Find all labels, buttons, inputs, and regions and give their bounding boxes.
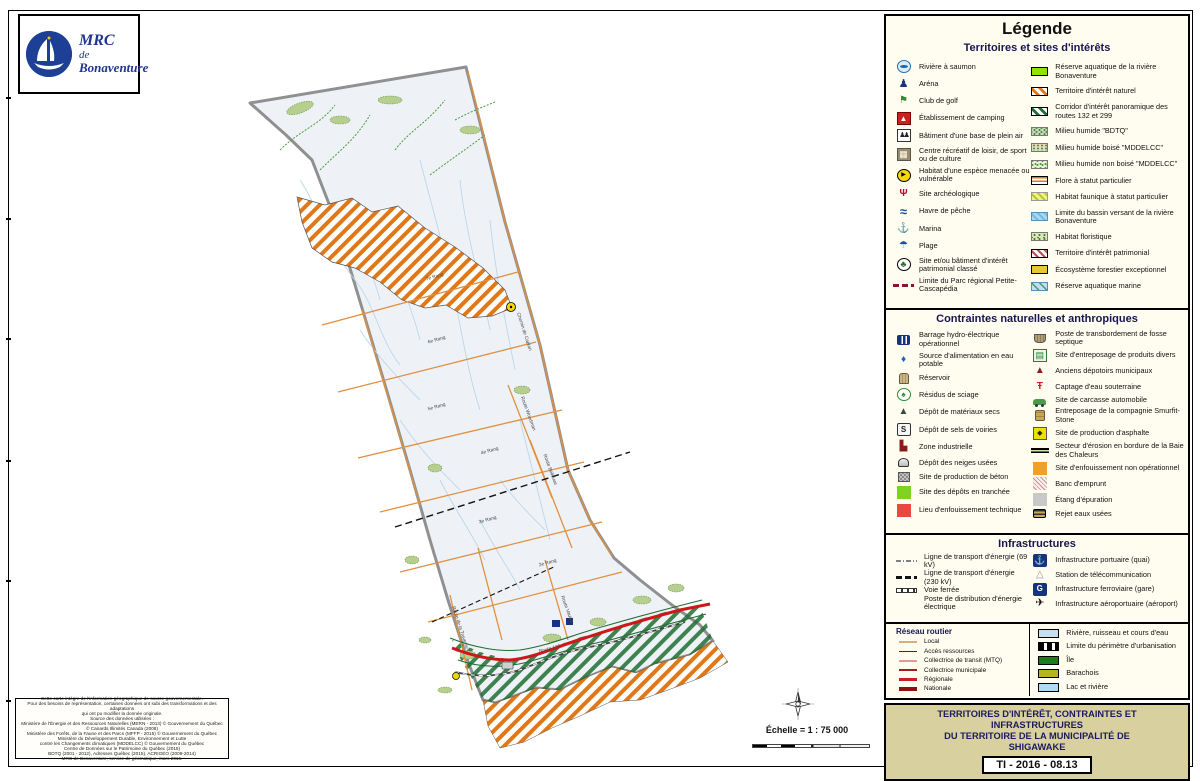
watercourse-line <box>1038 629 1059 638</box>
legend-item: Limite du Parc régional Petite-Cascapédi… <box>894 277 1030 293</box>
watershed-limit-swatch <box>1031 212 1048 221</box>
island-swatch <box>1038 656 1059 665</box>
legend-item: Réserve aquatique de la rivière Bonavent… <box>1030 63 1184 79</box>
legend-item: Infrastructure ferroviaire (gare) <box>1030 583 1184 596</box>
road-regional-line <box>899 678 917 681</box>
concrete-plant-icon <box>898 472 910 482</box>
legend-item: Lieu d'enfouissement technique <box>894 504 1030 517</box>
barachois-swatch <box>1038 669 1059 678</box>
legend-item: Résidus de sciage <box>894 388 1030 401</box>
legend-item: Centre récréatif de loisir, de sport ou … <box>894 147 1030 163</box>
road-local-line <box>899 641 917 643</box>
legend-item: Site archéologique <box>894 188 1030 201</box>
closed-landfill-swatch <box>1033 462 1047 475</box>
map-title-block: TERRITOIRES D'INTÉRÊT, CONTRAINTES ET IN… <box>884 703 1190 781</box>
drinking-water-icon <box>897 354 911 367</box>
section-title-contraintes: Contraintes naturelles et anthropiques <box>886 310 1188 325</box>
legend-item: Limite du périmètre d'urbanisation <box>1036 642 1184 651</box>
legend-item: Site d'entreposage de produits divers <box>1030 349 1184 362</box>
legend-item: Accès ressources <box>896 647 1025 656</box>
asphalt-plant-icon <box>1033 427 1047 440</box>
legend-item: Rivière, ruisseau et cours d'eau <box>1036 629 1184 638</box>
sailboat-logo-icon <box>26 31 72 77</box>
legend-item: Réservoir <box>894 373 1030 384</box>
section-title-territoires: Territoires et sites d'intérêts <box>886 39 1188 54</box>
legend-item: Barrage hydro-électrique opérationnel <box>894 331 1030 347</box>
camping-icon <box>897 112 911 125</box>
legend-item: Rivière à saumon <box>894 60 1030 73</box>
sawdust-icon <box>897 388 911 401</box>
legend-item: Limite du bassin versant de la rivière B… <box>1030 209 1184 225</box>
legend-item: Corridor d'intérêt panoramique des route… <box>1030 103 1184 119</box>
groundwater-capture-icon <box>1033 381 1047 394</box>
port-icon <box>1033 554 1047 567</box>
heritage-building-icon <box>897 258 911 271</box>
legend-item: Site de production d'asphalte <box>1030 427 1184 440</box>
legend-item: Site et/ou bâtiment d'intérêt patrimonia… <box>894 257 1030 273</box>
legend-item: Captage d'eau souterraine <box>1030 381 1184 394</box>
legend-item: Site de carcasse automobile <box>1030 396 1184 404</box>
products-storage-icon <box>1033 349 1047 362</box>
regional-park-limit-icon <box>893 284 914 287</box>
hydro-dam-icon <box>897 335 910 345</box>
wetland-open-swatch <box>1031 160 1048 169</box>
flora-status-swatch <box>1031 176 1048 185</box>
outdoor-base-icon <box>897 129 911 142</box>
legend-item: Infrastructure portuaire (quai) <box>1030 554 1184 567</box>
logo-text: MRC de Bonaventure <box>79 33 148 75</box>
legend-item: Anciens dépotoirs municipaux <box>1030 365 1184 378</box>
legend-item: Poste de transbordement de fosse septiqu… <box>1030 330 1184 346</box>
floristic-habitat-swatch <box>1031 232 1048 241</box>
trench-deposit-swatch <box>897 486 911 499</box>
scale-bar <box>752 744 870 748</box>
legend-item: Rejet eaux usées <box>1030 509 1184 518</box>
legend-item: Ligne de transport d'énergie (69 kV) <box>894 553 1030 569</box>
legend-item: Étang d'épuration <box>1030 493 1184 506</box>
legend-item: Territoire d'intérêt naturel <box>1030 87 1184 96</box>
map-title-line: SHIGAWAKE <box>892 742 1182 753</box>
legend-section-contraintes: Contraintes naturelles et anthropiques B… <box>884 308 1190 533</box>
legend-item: Régionale <box>896 675 1025 684</box>
old-dump-icon <box>1033 365 1047 378</box>
legend-item: Aréna <box>894 78 1030 91</box>
legend-item: Bâtiment d'une base de plein air <box>894 129 1030 142</box>
marina-icon <box>897 222 911 235</box>
fauna-habitat-swatch <box>1031 192 1048 201</box>
legend-section-reseau-routier: Réseau routier Local Accès ressources <box>884 622 1190 700</box>
erosion-sector-icon <box>1031 448 1049 453</box>
legend-panel: Légende Territoires et sites d'intérêts … <box>884 14 1190 781</box>
legend-item: Écosystème forestier exceptionnel <box>1030 265 1184 274</box>
treatment-pond-swatch <box>1033 493 1047 506</box>
road-salt-icon <box>897 423 911 436</box>
wetland-wooded-swatch <box>1031 143 1048 152</box>
legend-title: Légende <box>886 16 1188 39</box>
panoramic-corridor-swatch <box>1031 107 1048 116</box>
legend-item: Site des dépôts en tranchée <box>894 486 1030 499</box>
wetland-bdtq-swatch <box>1031 127 1048 136</box>
legend-item: Secteur d'érosion en bordure de la Baie … <box>1030 442 1184 458</box>
forest-ecosystem-swatch <box>1031 265 1048 274</box>
telecom-station-icon <box>1033 568 1047 581</box>
legend-item: Club de golf <box>894 95 1030 108</box>
recreation-centre-icon <box>897 148 911 161</box>
attribution-line: MRC de Bonaventure, service de géomatiqu… <box>18 756 226 761</box>
legend-item: Banc d'emprunt <box>1030 477 1184 490</box>
legend-item: Réserve aquatique marine <box>1030 282 1184 291</box>
section-title-infrastructures: Infrastructures <box>886 535 1188 550</box>
dry-materials-icon <box>897 406 911 419</box>
port-map-icon <box>552 620 560 627</box>
legend-item: Entreposage de la compagnie Smurfit-Ston… <box>1030 407 1184 423</box>
legend-item: Collectrice de transit (MTQ) <box>896 656 1025 665</box>
industrial-zone-icon <box>897 441 911 454</box>
legend-item: Dépôt des neiges usées <box>894 458 1030 467</box>
train-station-icon <box>1033 583 1047 596</box>
legend-item: Ligne de transport d'énergie (230 kV) <box>894 569 1030 585</box>
legend-item: Habitat faunique à statut particulier <box>1030 192 1184 201</box>
legend-item: Poste de distribution d'énergie électriq… <box>894 595 1030 611</box>
legend-item: Milieu humide boisé "MDDELCC" <box>1030 143 1184 152</box>
aquatic-reserve-swatch <box>1031 67 1048 76</box>
legend-item: Établissement de camping <box>894 112 1030 125</box>
legend-item: Havre de pêche <box>894 205 1030 218</box>
attribution-box: Cette carte intègre de l'information géo… <box>15 698 229 759</box>
lake-river-swatch <box>1038 683 1059 692</box>
road-network-subpanel: Réseau routier Local Accès ressources <box>894 624 1030 696</box>
road-national-line <box>899 687 917 691</box>
endangered-species-icon <box>897 169 911 182</box>
fishing-harbour-icon <box>897 205 911 218</box>
logo-line1: MRC <box>79 33 148 50</box>
legend-item: Milieu humide non boisé "MDDELCC" <box>1030 160 1184 169</box>
road-mtq-line <box>899 660 917 662</box>
septic-transfer-icon <box>1034 334 1046 343</box>
legend-item: Collectrice municipale <box>896 666 1025 675</box>
smurfit-storage-icon <box>1035 410 1045 421</box>
archaeological-site-icon <box>897 188 911 201</box>
legend-item: Site d'enfouissement non opérationnel <box>1030 462 1184 475</box>
legend-item: Source d'alimentation en eau potable <box>894 352 1030 368</box>
legend-item: Dépôt de matériaux secs <box>894 406 1030 419</box>
urban-perimeter-line <box>1038 642 1059 651</box>
legend-item: Nationale <box>896 685 1025 694</box>
power-line-230-icon <box>896 576 917 579</box>
legend-item: Territoire d'intérêt patrimonial <box>1030 249 1184 258</box>
power-line-69-icon <box>896 560 917 562</box>
legend-item: Dépôt de sels de voiries <box>894 423 1030 436</box>
salt-map-icon <box>453 673 460 680</box>
municipality-map: 7e Rang6e Rang5e Rang4e Rang3e Rang2e Ra… <box>0 0 880 776</box>
pond-map-icon <box>502 662 513 669</box>
map-code: TI - 2016 - 08.13 <box>982 756 1091 774</box>
legend-section-infrastructures: Infrastructures Ligne de transport d'éne… <box>884 533 1190 622</box>
map-title-line: TERRITOIRES D'INTÉRÊT, CONTRAINTES ET IN… <box>892 709 1182 731</box>
legend-item: Habitat floristique <box>1030 232 1184 241</box>
legend-item: Milieu humide "BDTQ" <box>1030 127 1184 136</box>
legend-item: Site de production de béton <box>894 472 1030 482</box>
legend-item: Plage <box>894 239 1030 252</box>
technical-landfill-swatch <box>897 504 911 517</box>
reservoir-icon <box>899 373 909 384</box>
logo-line3: Bonaventure <box>79 61 148 75</box>
salmon-river-icon <box>897 60 911 73</box>
natural-interest-swatch <box>1031 87 1048 96</box>
scale-text: Échelle = 1 : 75 000 <box>742 725 872 735</box>
attribution-line: Pour des besoins de représentation, cert… <box>18 701 226 711</box>
legend-item: Marina <box>894 222 1030 235</box>
legend-item: Lac et rivière <box>1036 683 1184 692</box>
car-carcass-icon <box>1033 399 1046 405</box>
wastewater-outfall-icon <box>1033 509 1046 518</box>
compass-rose-icon <box>781 686 815 727</box>
golf-club-icon <box>897 95 911 108</box>
snow-dump-icon <box>898 458 909 467</box>
legend-item: Zone industrielle <box>894 441 1030 454</box>
road-municipal-line <box>899 669 917 672</box>
mrc-logo: MRC de Bonaventure <box>18 14 140 94</box>
legend-section-territoires: Légende Territoires et sites d'intérêts … <box>884 14 1190 308</box>
legend-item: Station de télécommunication <box>1030 568 1184 581</box>
railway-icon <box>896 588 917 593</box>
map-title-line: DU TERRITOIRE DE LA MUNICIPALITÉ DE <box>892 731 1182 742</box>
marine-reserve-swatch <box>1031 282 1048 291</box>
legend-item: Local <box>896 637 1025 646</box>
road-access-line <box>899 651 917 653</box>
borrow-pit-swatch <box>1033 477 1047 490</box>
roadnet-title: Réseau routier <box>896 627 1025 636</box>
legend-item: Barachois <box>1036 669 1184 678</box>
legend-item: Infrastructure aéroportuaire (aéroport) <box>1030 597 1184 610</box>
heritage-territory-swatch <box>1031 249 1048 258</box>
arena-icon <box>897 78 911 91</box>
beach-icon <box>897 239 911 252</box>
legend-item: Île <box>1036 656 1184 665</box>
legend-item: Habitat d'une espèce menacée ou vulnérab… <box>894 167 1030 183</box>
legend-item: Flore à statut particulier <box>1030 176 1184 185</box>
airport-icon <box>1033 597 1047 610</box>
